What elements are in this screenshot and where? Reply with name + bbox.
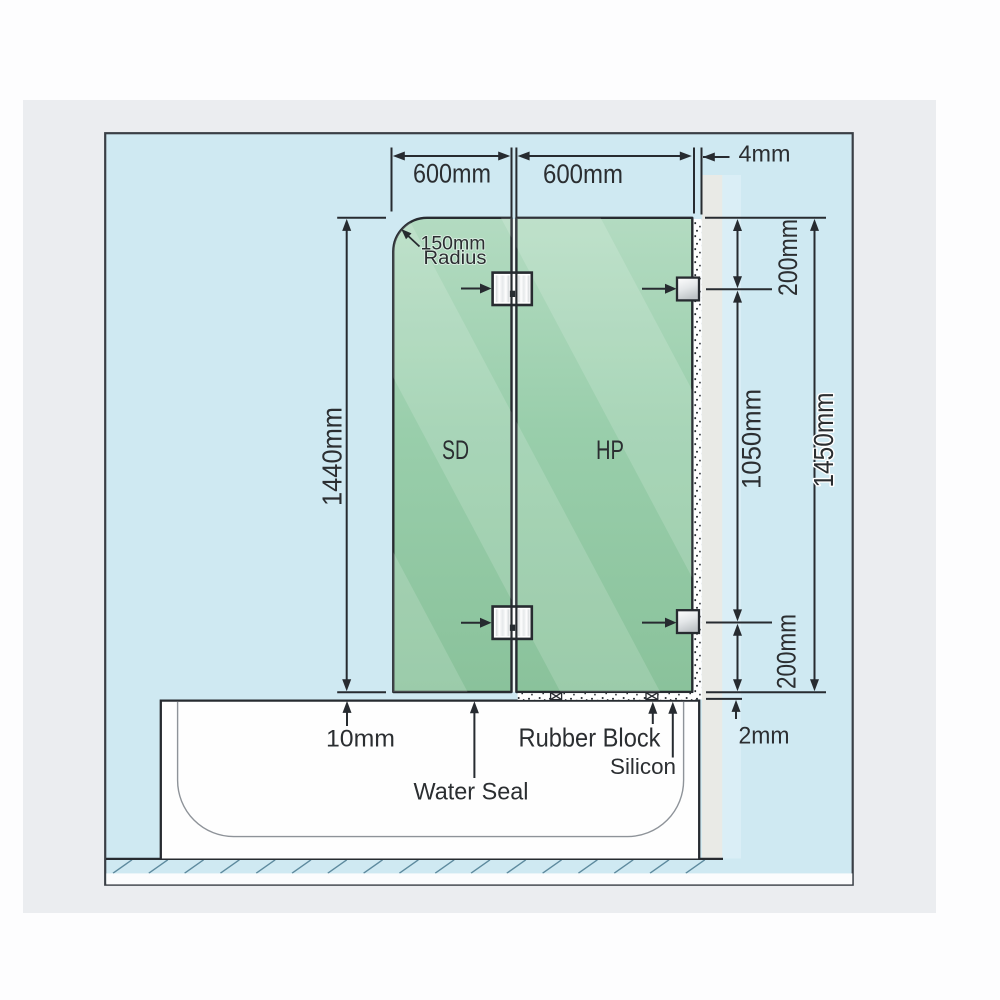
svg-text:600mm: 600mm: [543, 159, 623, 189]
svg-text:2mm: 2mm: [739, 723, 790, 750]
svg-text:200mm: 200mm: [773, 219, 803, 296]
svg-text:600mm: 600mm: [413, 158, 491, 188]
svg-text:Silicon: Silicon: [610, 754, 676, 779]
svg-text:SD: SD: [442, 435, 469, 465]
svg-text:1440mm: 1440mm: [317, 407, 348, 506]
svg-text:1050mm: 1050mm: [737, 389, 767, 489]
svg-text:Water Seal: Water Seal: [414, 778, 529, 805]
svg-text:4mm: 4mm: [739, 141, 791, 167]
svg-text:1450mm: 1450mm: [808, 393, 839, 488]
svg-text:HP: HP: [596, 435, 624, 465]
svg-text:Radius: Radius: [424, 248, 487, 269]
svg-text:Rubber Block: Rubber Block: [519, 722, 662, 752]
svg-text:10mm: 10mm: [326, 725, 395, 752]
svg-text:200mm: 200mm: [772, 614, 802, 689]
